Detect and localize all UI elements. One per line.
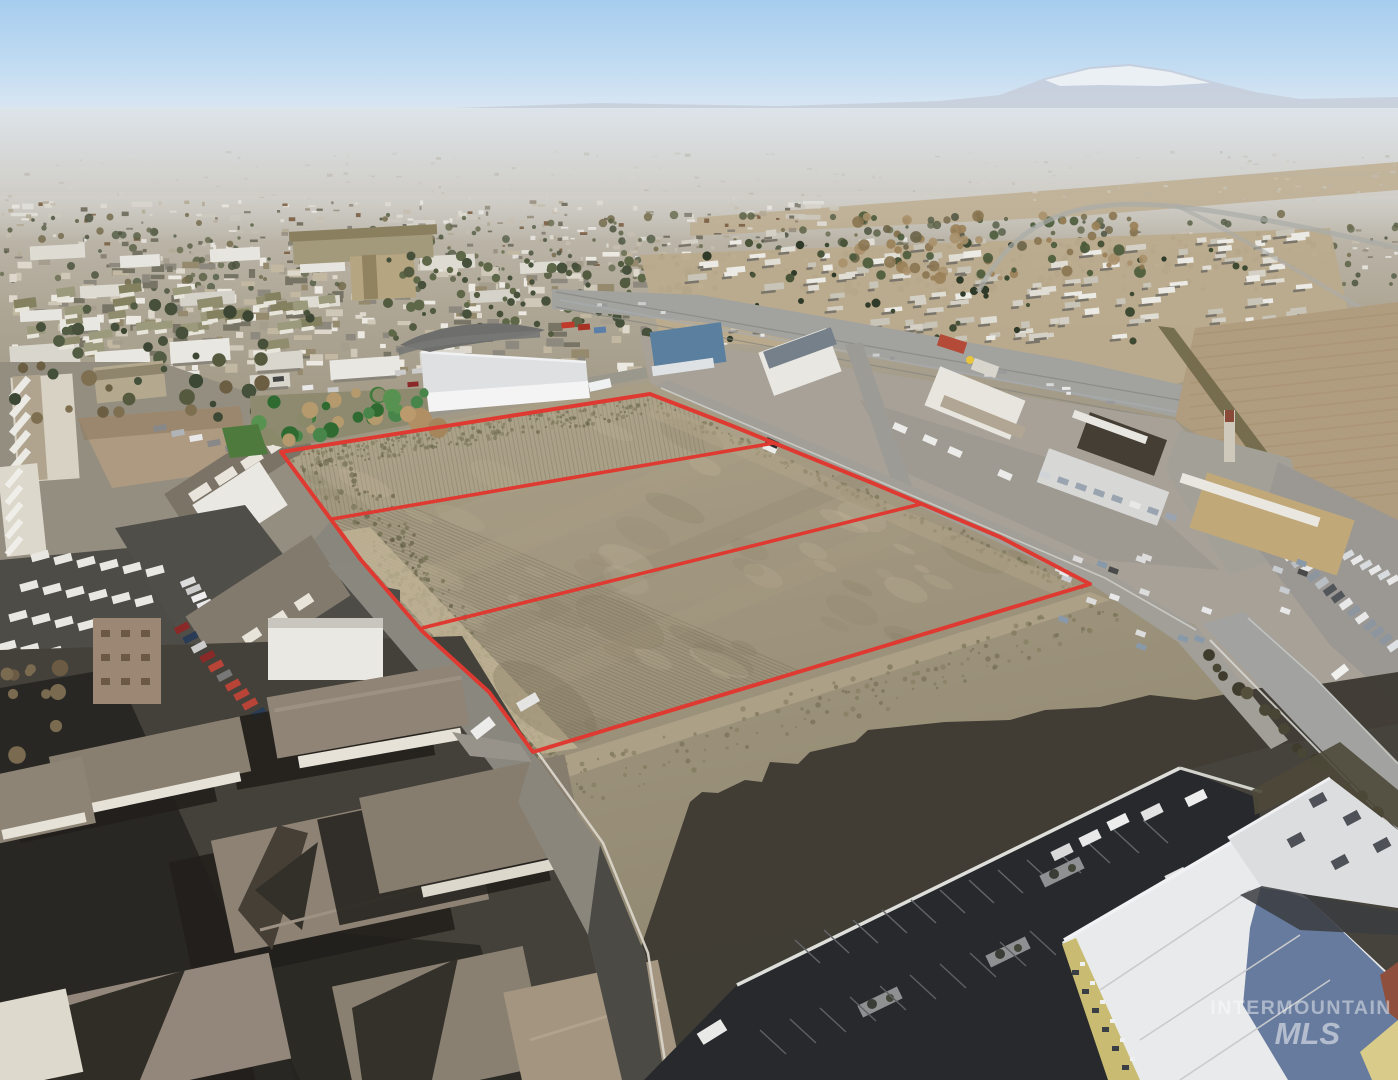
svg-text:MLS: MLS: [1275, 1016, 1341, 1051]
